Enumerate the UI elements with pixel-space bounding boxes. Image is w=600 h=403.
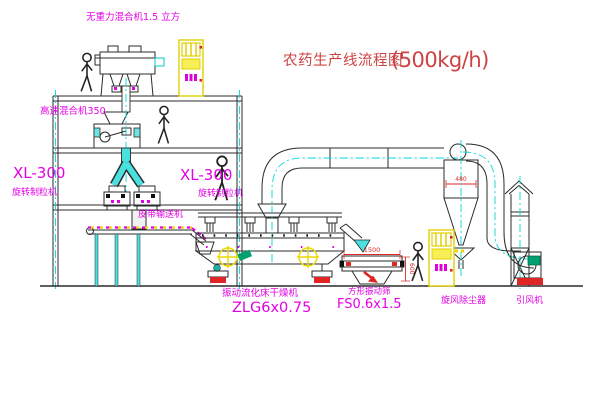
downcomer-duct <box>463 144 534 268</box>
label-granulator-model-left: XL-300 <box>13 164 65 182</box>
person-figure <box>158 106 169 143</box>
process-flow-diagram: 480 <box>0 0 600 403</box>
square-sieve-machine <box>340 224 410 284</box>
label-high-speed-mixer: 高速混合机350 <box>40 105 106 117</box>
dim-cyclone: 480 <box>455 176 467 183</box>
label-fan: 引风机 <box>516 294 543 306</box>
page-title-capacity: (500kg/h) <box>391 48 489 72</box>
granulator-feed-pipes <box>114 148 141 185</box>
exhaust-stack <box>505 176 533 289</box>
label-granulator-name-center: 旋转制粒机 <box>198 187 243 199</box>
label-sieve-name: 方形振动筛 <box>348 286 391 297</box>
granulator-left-machine <box>104 186 130 210</box>
page-title: 农药生产线流程图 <box>283 52 403 69</box>
label-dryer-model: ZLG6x0.75 <box>232 300 311 316</box>
label-gravity-mixer: 无重力混合机1.5 立方 <box>86 11 180 23</box>
label-granulator-name-left: 旋转制粒机 <box>12 186 57 198</box>
label-cyclone: 旋风除尘器 <box>441 294 486 306</box>
person-figure <box>412 242 423 281</box>
person-figure <box>81 53 92 91</box>
drawing-canvas: 480 <box>0 0 600 403</box>
label-belt-conveyor: 皮带输送机 <box>138 208 183 220</box>
granulator-right-machine <box>134 186 160 210</box>
label-granulator-model-center: XL-300 <box>180 166 232 184</box>
label-sieve-model: FS0.6x1.5 <box>337 297 402 312</box>
label-dryer-name: 振动流化床干燥机 <box>222 287 299 299</box>
control-cabinet-lower <box>429 230 454 286</box>
control-cabinet-upper <box>179 40 203 96</box>
dim-sieve-width: 600 <box>408 263 415 275</box>
fluid-bed-dryer-machine <box>196 213 344 283</box>
high-speed-mixer <box>90 112 144 148</box>
belt-conveyor-machine <box>87 228 207 287</box>
dim-sieve-length: 1500 <box>364 246 381 254</box>
